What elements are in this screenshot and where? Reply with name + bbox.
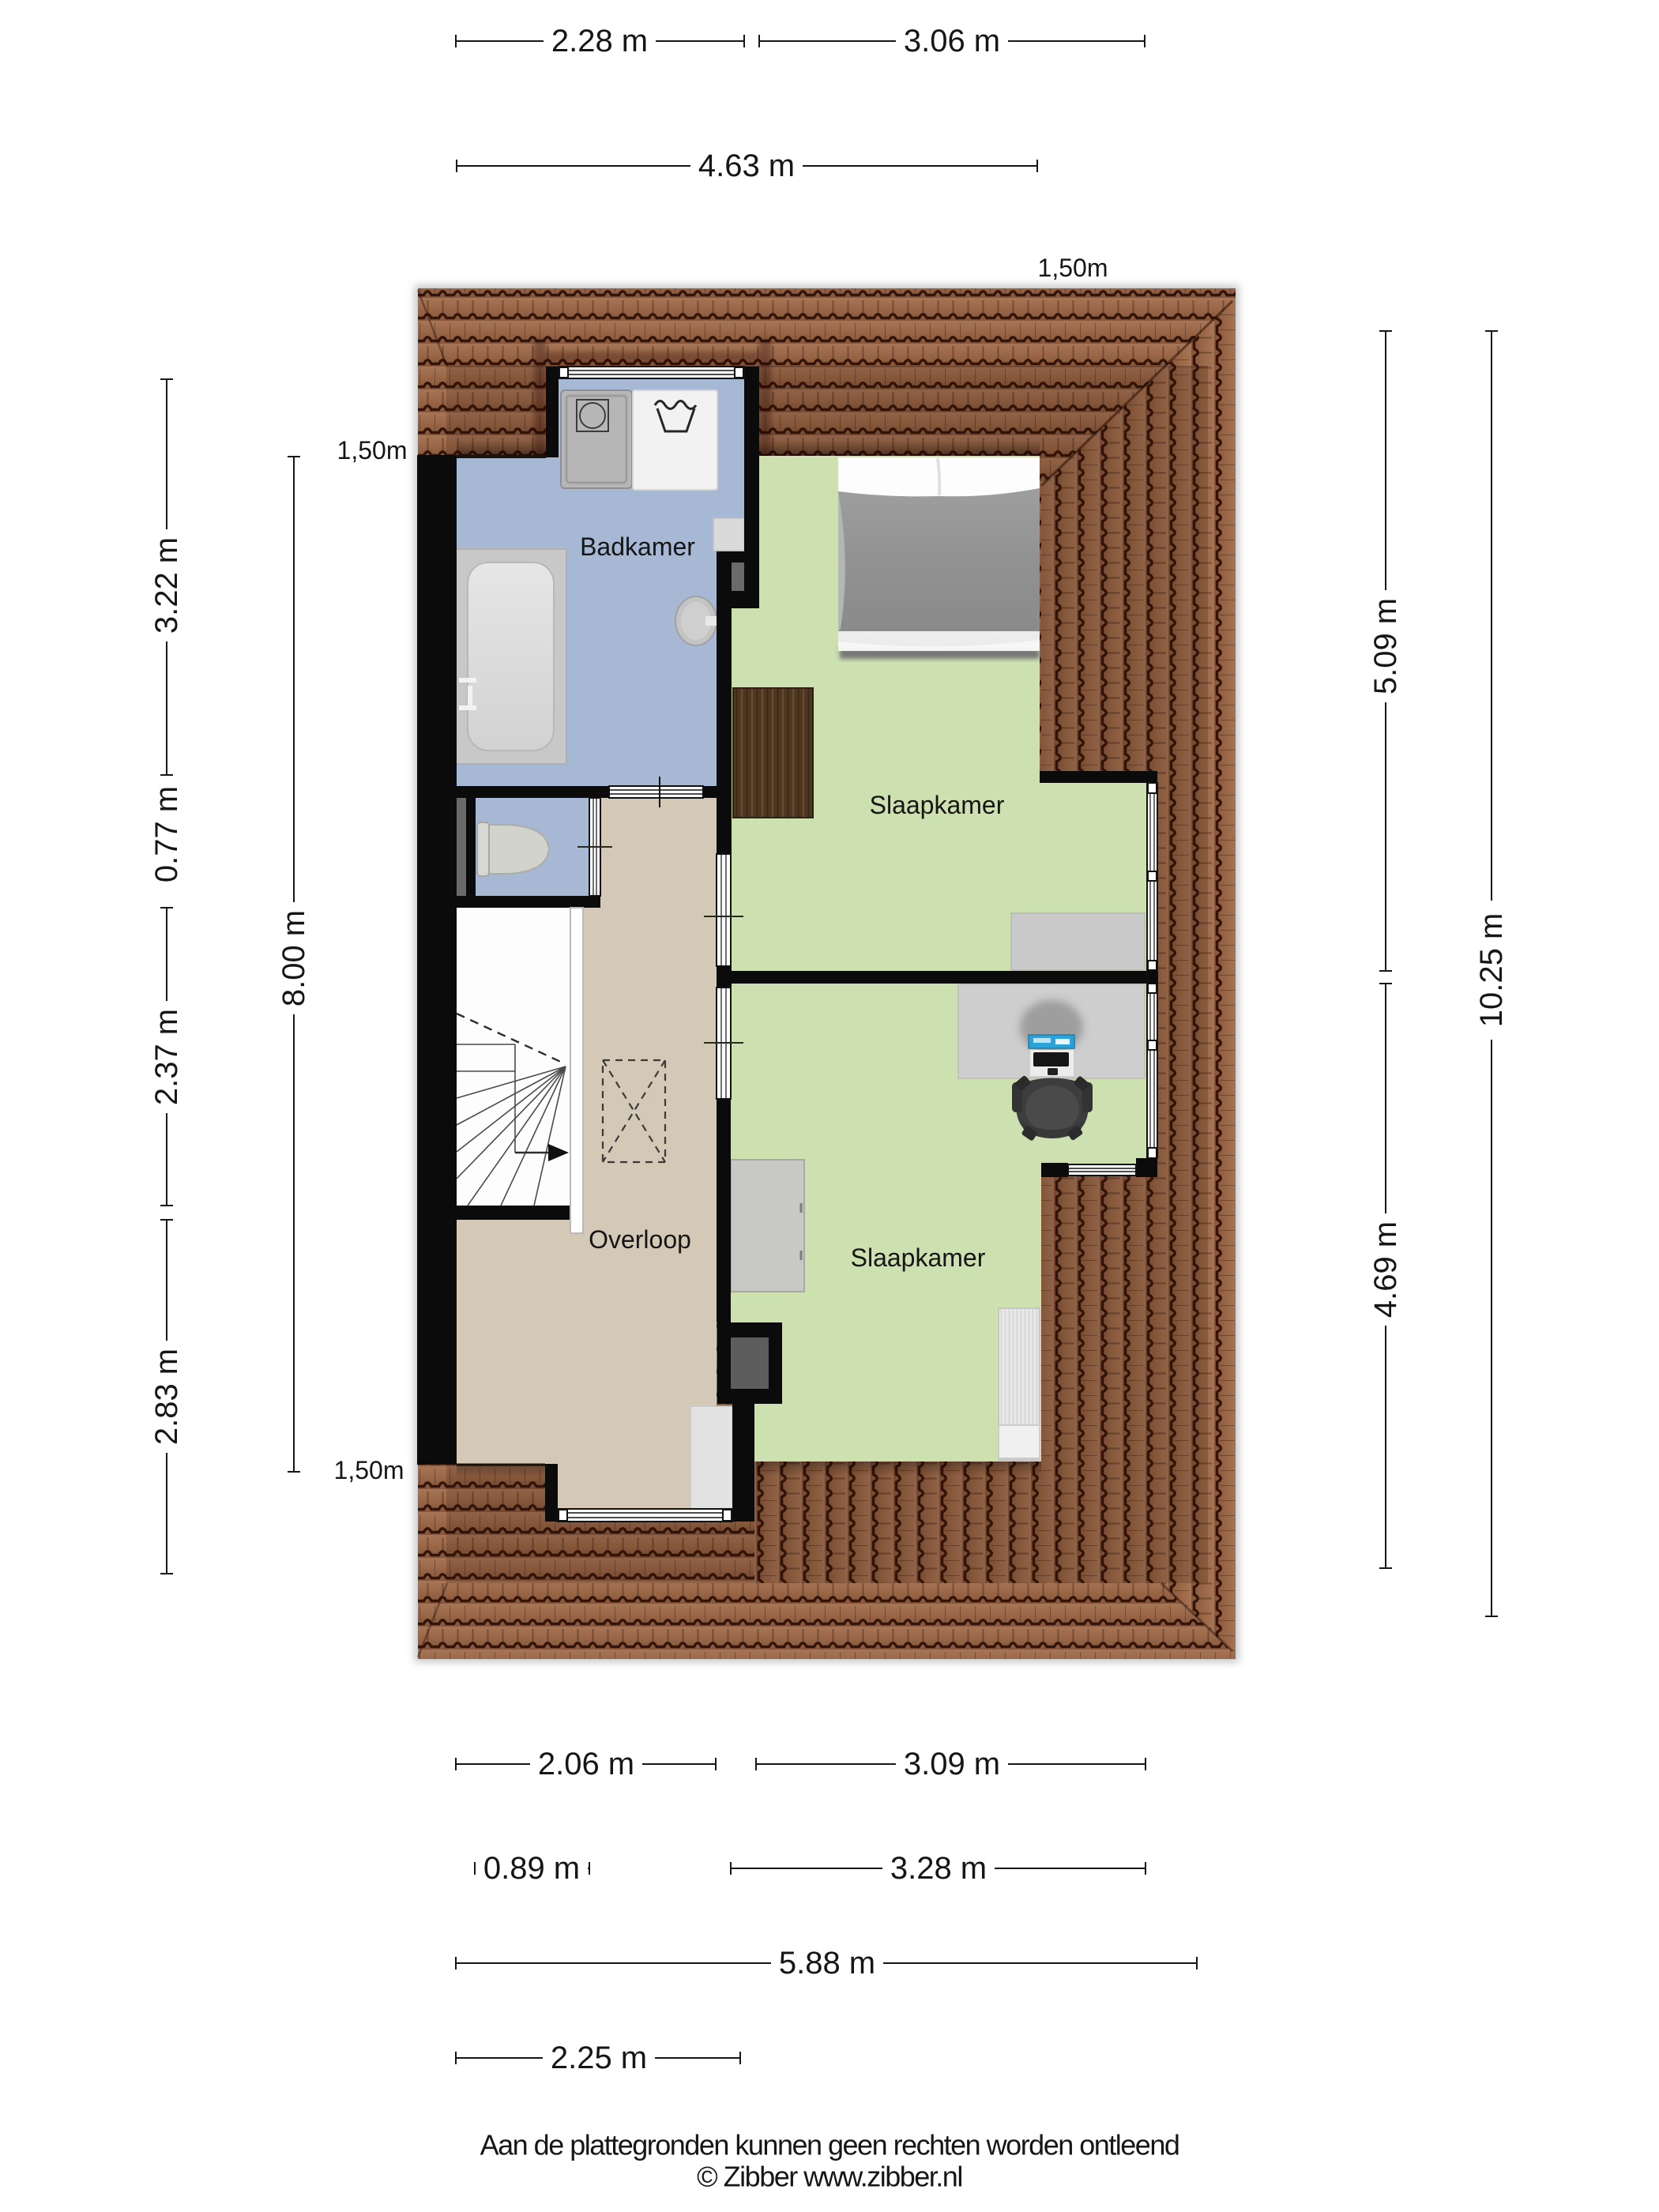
svg-text:3.09 m: 3.09 m xyxy=(904,1747,1000,1781)
svg-text:© Zibber www.zibber.nl: © Zibber www.zibber.nl xyxy=(697,2161,962,2193)
svg-text:2.06 m: 2.06 m xyxy=(538,1747,634,1781)
svg-text:5.88 m: 5.88 m xyxy=(779,1946,875,1981)
svg-text:3.06 m: 3.06 m xyxy=(904,24,1000,58)
svg-text:0.77 m: 0.77 m xyxy=(149,786,184,882)
svg-text:2.25 m: 2.25 m xyxy=(551,2041,647,2075)
svg-text:2.28 m: 2.28 m xyxy=(551,24,648,58)
svg-text:4.69 m: 4.69 m xyxy=(1368,1221,1403,1318)
svg-text:4.63 m: 4.63 m xyxy=(698,149,795,183)
svg-text:Badkamer: Badkamer xyxy=(580,532,695,561)
svg-text:Overloop: Overloop xyxy=(589,1225,691,1254)
svg-text:2.83 m: 2.83 m xyxy=(149,1349,184,1445)
svg-text:10.25 m: 10.25 m xyxy=(1474,913,1509,1028)
svg-text:Slaapkamer: Slaapkamer xyxy=(870,791,1005,819)
svg-text:1,50m: 1,50m xyxy=(337,436,408,465)
svg-text:Slaapkamer: Slaapkamer xyxy=(851,1243,986,1272)
svg-text:5.09 m: 5.09 m xyxy=(1368,598,1403,694)
svg-text:0.89 m: 0.89 m xyxy=(483,1851,580,1886)
svg-text:1,50m: 1,50m xyxy=(1038,254,1108,282)
svg-text:3.28 m: 3.28 m xyxy=(890,1851,987,1886)
svg-text:Aan de plattegronden kunnen ge: Aan de plattegronden kunnen geen rechten… xyxy=(480,2129,1179,2161)
svg-text:3.22 m: 3.22 m xyxy=(149,537,184,634)
svg-text:1,50m: 1,50m xyxy=(334,1456,404,1484)
svg-text:8.00 m: 8.00 m xyxy=(276,910,311,1006)
svg-text:2.37 m: 2.37 m xyxy=(149,1009,184,1105)
